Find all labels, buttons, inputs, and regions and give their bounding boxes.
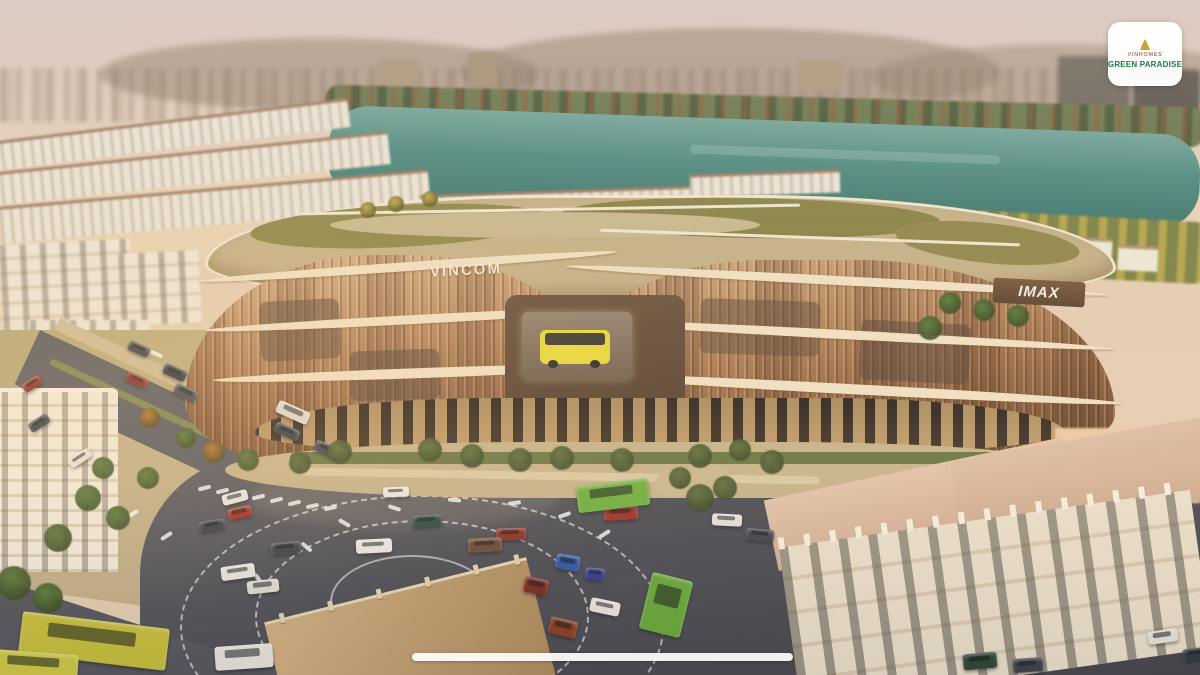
car: [356, 538, 393, 554]
orange-tree: [203, 441, 225, 463]
logo-project-text: GREEN PARADISE: [1108, 60, 1182, 69]
car: [712, 513, 743, 527]
palm-tree: [137, 467, 159, 489]
distant-tower: [798, 60, 844, 92]
tree: [760, 450, 784, 474]
vehicle-windows: [589, 570, 601, 575]
advert-van-wheel: [590, 360, 600, 368]
car: [412, 514, 443, 528]
tree: [610, 448, 634, 472]
tree: [713, 476, 737, 500]
vehicle-windows: [1018, 660, 1036, 666]
vehicle-windows: [1153, 631, 1171, 638]
tree: [328, 440, 352, 464]
vehicle-windows: [554, 620, 572, 630]
tree: [688, 444, 712, 468]
tree: [460, 444, 484, 468]
car: [468, 537, 503, 553]
palm-tree: [92, 457, 114, 479]
car: [962, 652, 997, 671]
palm-tree: [33, 583, 63, 613]
vinhomes-emblem-icon: [1140, 39, 1150, 50]
tree: [686, 484, 714, 512]
vehicle-windows: [203, 521, 219, 527]
vehicle-windows: [225, 648, 260, 659]
car: [584, 567, 605, 581]
orange-tree: [140, 408, 160, 428]
vehicle-windows: [653, 584, 682, 609]
video-progress-bar[interactable]: [412, 653, 793, 661]
vehicle-windows: [969, 655, 990, 662]
vehicle-windows: [596, 601, 615, 609]
vehicle-windows: [589, 484, 633, 498]
imax-sign: IMAX: [1018, 283, 1060, 302]
vehicle-windows: [1187, 649, 1200, 655]
vehicle-windows: [560, 556, 575, 564]
palm-tree: [176, 428, 196, 448]
palm-tree: [918, 316, 942, 340]
plaza-hedge: [290, 452, 1050, 464]
palm-tree: [44, 524, 72, 552]
vehicle-windows: [276, 543, 294, 549]
gold-palm: [360, 202, 376, 218]
vehicle-windows: [252, 581, 272, 587]
vehicle-windows: [8, 655, 60, 667]
palm-tree: [1007, 305, 1029, 327]
riverside-villa: [1117, 245, 1158, 272]
car: [746, 528, 775, 542]
aerial-render-scene: VINCOM IMAX VINHOMES GREEN PARADISE: [0, 0, 1200, 675]
logo-brand-text: VINHOMES: [1128, 52, 1163, 58]
white-apartment-block: [116, 250, 202, 326]
vehicle-windows: [501, 530, 519, 535]
tree: [418, 438, 442, 462]
vehicle-windows: [226, 492, 242, 500]
palm-tree: [237, 449, 259, 471]
vehicle-windows: [474, 540, 495, 546]
vehicle-windows: [717, 516, 735, 521]
imax-sign-panel: IMAX: [992, 278, 1085, 308]
car: [383, 487, 409, 498]
tree: [289, 452, 311, 474]
tree: [508, 448, 532, 472]
tree: [669, 467, 691, 489]
vehicle-windows: [528, 579, 543, 587]
vehicle-windows: [417, 517, 435, 522]
palm-tree: [973, 299, 995, 321]
van: [214, 643, 274, 671]
car: [1013, 657, 1044, 673]
car: [1182, 647, 1200, 662]
vehicle-windows: [751, 530, 768, 536]
vehicle-windows: [47, 622, 137, 647]
tree: [729, 439, 751, 461]
gold-palm: [388, 196, 404, 212]
palm-tree: [106, 506, 130, 530]
advert-van-windshield: [545, 333, 605, 345]
mall-glass-panel: [859, 319, 972, 385]
vehicle-windows: [362, 541, 384, 547]
project-logo-badge: VINHOMES GREEN PARADISE: [1108, 22, 1182, 86]
led-billboard-screen: [522, 312, 632, 380]
advert-van-wheel: [548, 360, 558, 368]
gold-palm: [422, 191, 438, 207]
vehicle-windows: [232, 508, 247, 515]
palm-tree: [75, 485, 101, 511]
tree: [550, 446, 574, 470]
vehicle-windows: [388, 489, 404, 493]
vehicle-windows: [227, 566, 248, 574]
palm-tree: [939, 292, 961, 314]
